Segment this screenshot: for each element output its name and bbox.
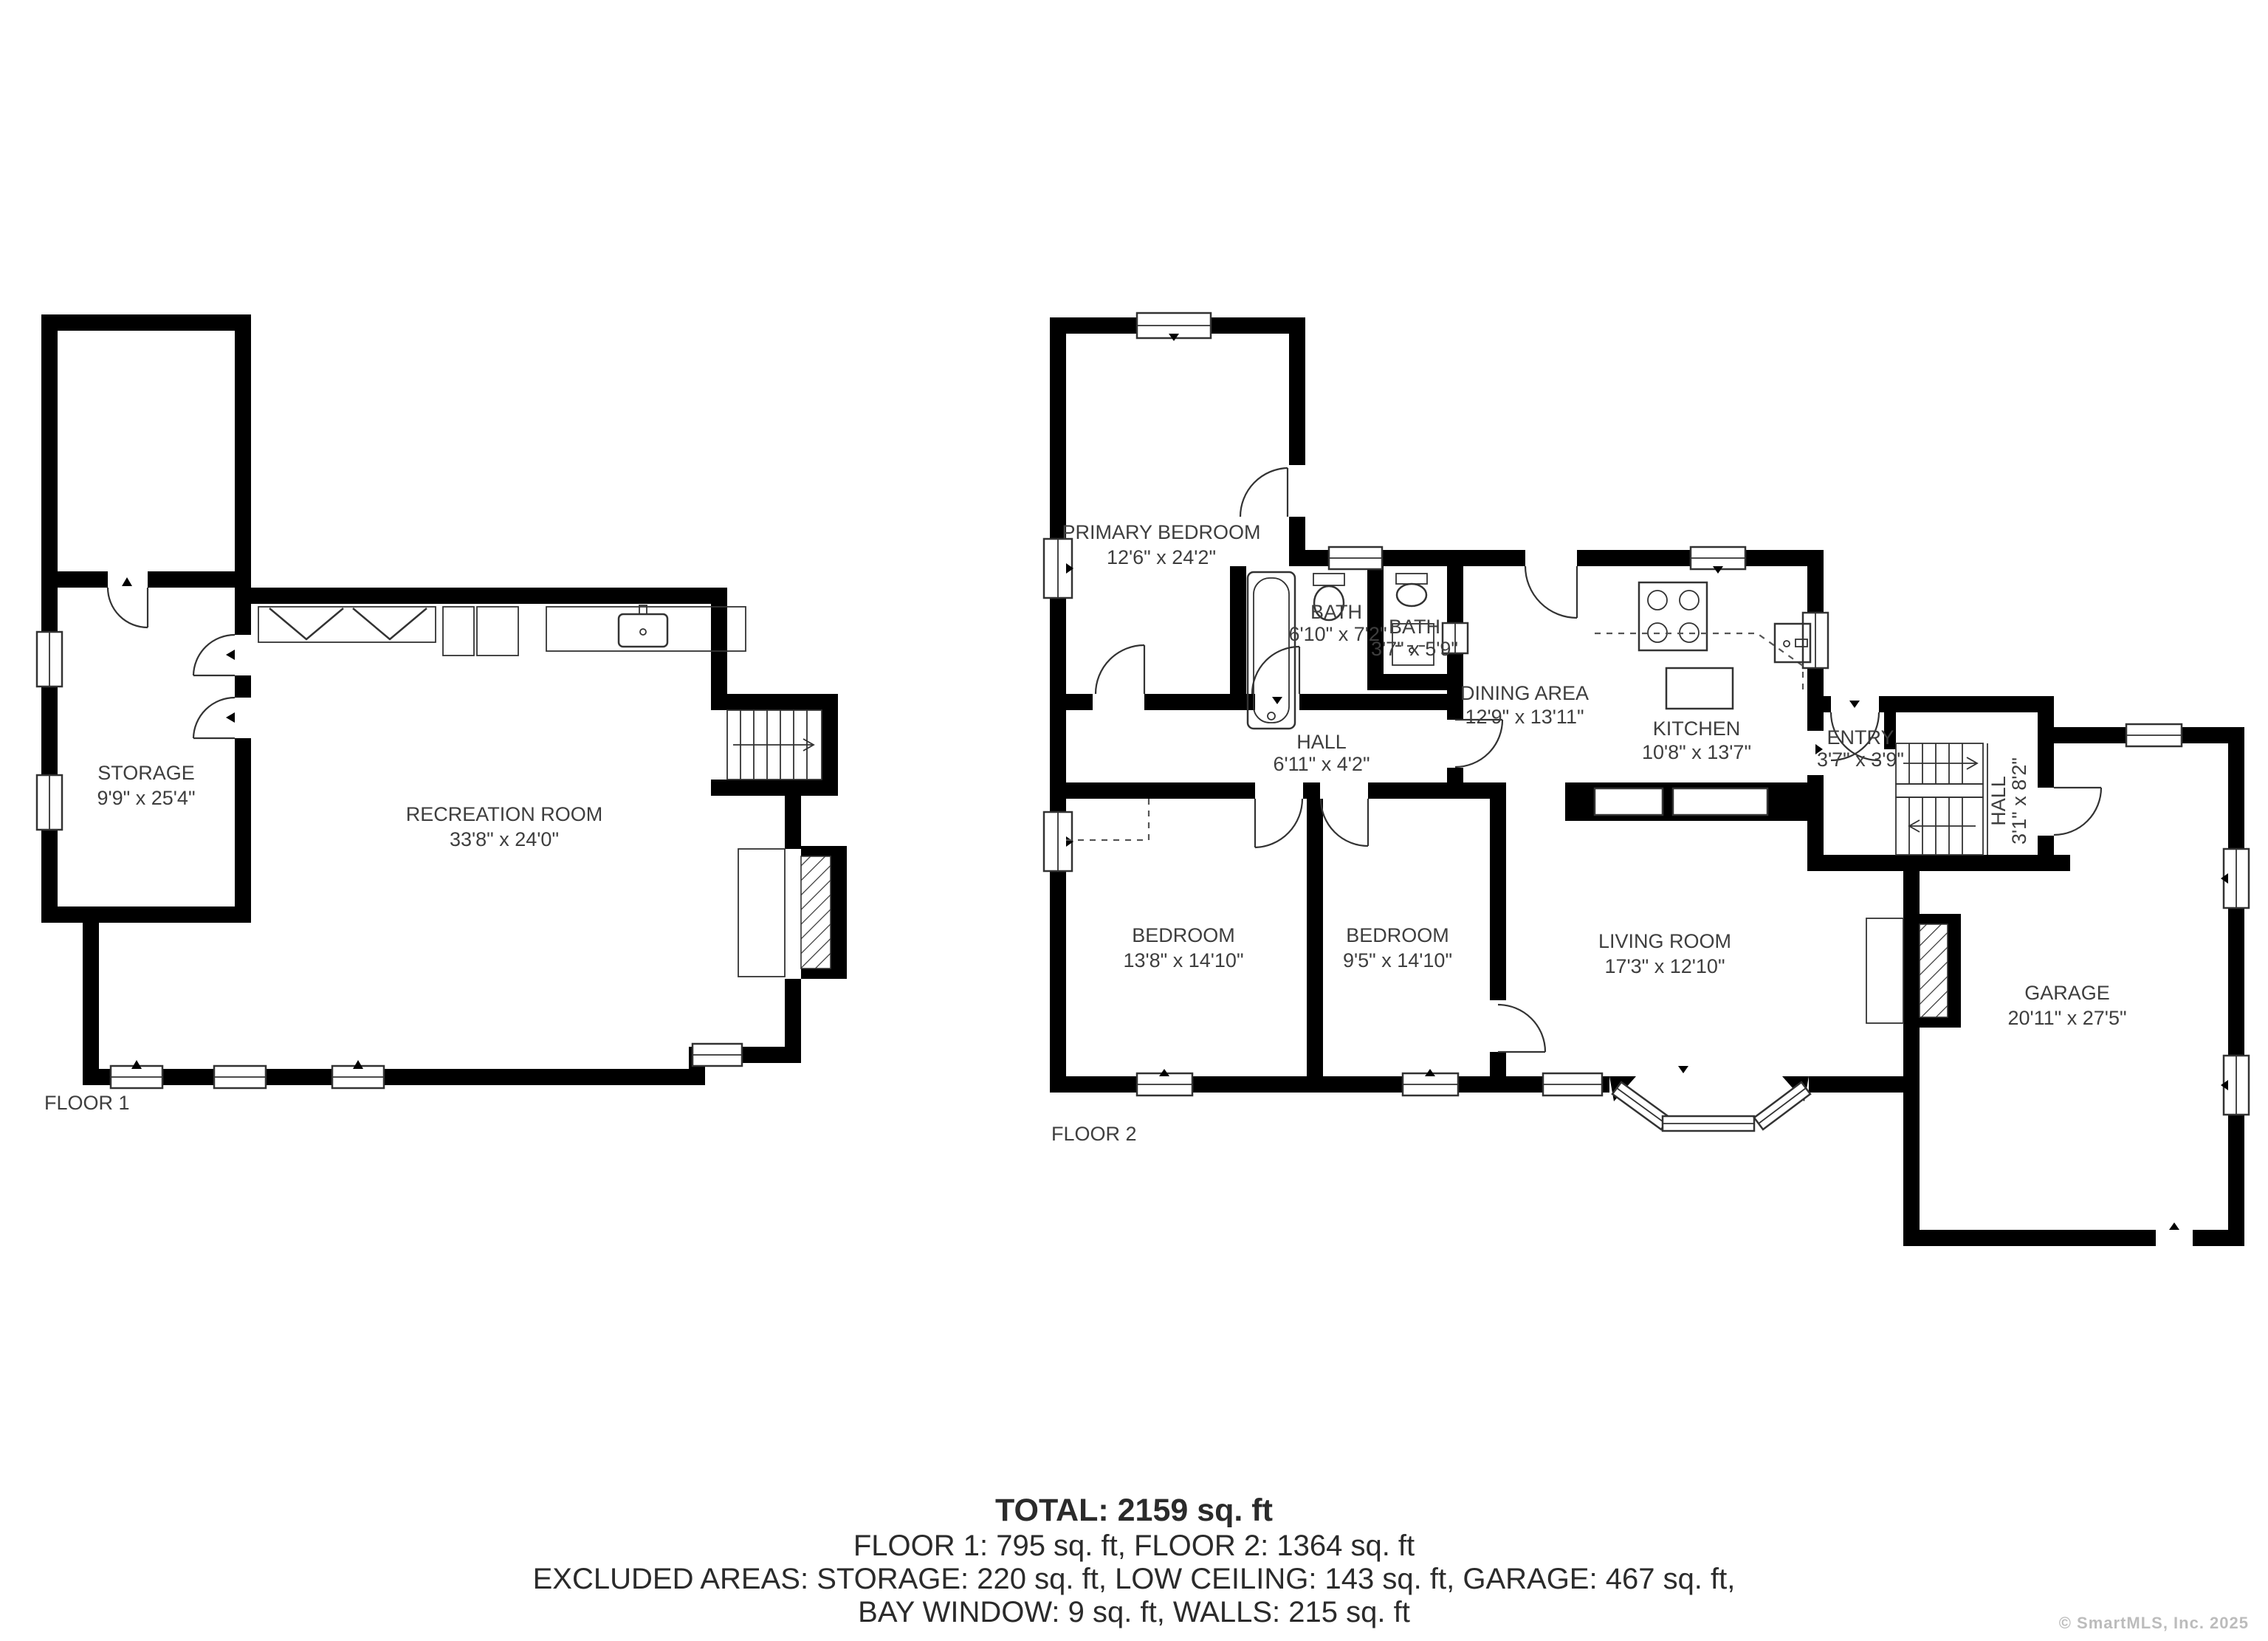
room-label-bedroom2: BEDROOM — [1346, 924, 1449, 946]
room-label-kitchen: KITCHEN — [1653, 718, 1741, 740]
door-triangle — [2169, 1222, 2179, 1230]
closet-bifold — [258, 607, 436, 642]
room-label-bedroom1: BEDROOM — [1132, 924, 1235, 946]
window — [1137, 1073, 1192, 1095]
floor1-room-labels: STORAGE 9'9" x 25'4" RECREATION ROOM 33'… — [97, 762, 602, 850]
door-arc — [1321, 799, 1368, 846]
peninsula-counters — [1595, 788, 1767, 815]
room-dims-living: 17'3" x 12'10" — [1604, 955, 1725, 977]
window — [1329, 547, 1382, 569]
stairs — [727, 710, 822, 780]
room-dims-bedroom2: 9'5" x 14'10" — [1343, 949, 1452, 971]
door-arc — [1498, 1005, 1545, 1052]
stairs — [1896, 743, 1983, 855]
room-dims-hall: 6'11" x 4'2" — [1273, 753, 1370, 775]
room-dims-storage: 9'9" x 25'4" — [97, 787, 195, 809]
door-arc — [1240, 468, 1288, 517]
window — [37, 632, 62, 687]
room-label-hall: HALL — [1296, 731, 1347, 753]
room-label-recreation: RECREATION ROOM — [406, 803, 603, 825]
summary-total: TOTAL: 2159 sq. ft — [0, 1493, 2268, 1530]
window — [214, 1066, 266, 1088]
door-arc — [1252, 647, 1299, 694]
room-label-living: LIVING ROOM — [1598, 930, 1731, 952]
cabinets — [443, 607, 518, 656]
area-summary: TOTAL: 2159 sq. ft FLOOR 1: 795 sq. ft, … — [0, 1493, 2268, 1629]
room-dims-bedroom1: 13'8" x 14'10" — [1123, 949, 1243, 971]
door-arc — [1255, 799, 1302, 847]
window — [693, 1044, 742, 1066]
kitchen-island — [1666, 668, 1733, 709]
floor1-walls — [41, 314, 847, 1085]
window — [332, 1066, 384, 1088]
floor2-room-labels: PRIMARY BEDROOM 12'6" x 24'2" BATH 6'10"… — [1062, 521, 2126, 1029]
summary-excluded-line1: EXCLUDED AREAS: STORAGE: 220 sq. ft, LOW… — [0, 1563, 2268, 1596]
room-label-bath1: BATH — [1310, 601, 1362, 623]
room-label-storage: STORAGE — [97, 762, 195, 784]
window-triangle — [353, 1060, 363, 1069]
door-triangle — [226, 712, 235, 723]
room-dims-garage: 20'11" x 27'5" — [2007, 1007, 2126, 1029]
floorplan-canvas: STORAGE 9'9" x 25'4" RECREATION ROOM 33'… — [0, 0, 2268, 1641]
watermark: © SmartMLS, Inc. 2025 — [2059, 1614, 2249, 1633]
window — [37, 775, 62, 830]
room-label-garage: GARAGE — [2024, 982, 2110, 1004]
door-arc — [108, 588, 148, 627]
room-dims-dining: 12'9" x 13'11" — [1465, 706, 1584, 728]
door-triangle — [1849, 701, 1860, 708]
window — [1403, 1073, 1458, 1095]
window — [111, 1066, 162, 1088]
window — [1543, 1073, 1602, 1095]
door-triangle — [1272, 697, 1282, 704]
room-label-entry: ENTRY — [1827, 726, 1894, 749]
window — [2126, 724, 2182, 746]
room-label-hall2: HALL — [1987, 776, 2010, 826]
summary-excluded-line2: BAY WINDOW: 9 sq. ft, WALLS: 215 sq. ft — [0, 1596, 2268, 1629]
window-triangle — [131, 1060, 142, 1069]
counter-dashed-line — [1595, 633, 1803, 694]
room-label-primary: PRIMARY BEDROOM — [1062, 521, 1260, 543]
room-label-dining: DINING AREA — [1460, 682, 1589, 704]
room-dims-recreation: 33'8" x 24'0" — [450, 828, 559, 850]
summary-floors: FLOOR 1: 795 sq. ft, FLOOR 2: 1364 sq. f… — [0, 1530, 2268, 1563]
toilet — [1396, 574, 1427, 606]
room-dims-entry: 3'7" x 3'9" — [1817, 749, 1904, 771]
room-dims-bath2: 3'7" x 5'9" — [1371, 638, 1458, 660]
room-dims-hall2: 3'1" x 8'2" — [2008, 757, 2030, 844]
floor1-windows — [37, 632, 742, 1088]
fireplace — [738, 849, 831, 977]
room-dims-primary: 12'6" x 24'2" — [1107, 546, 1216, 568]
window-triangle — [1678, 1066, 1688, 1073]
window — [1691, 547, 1745, 569]
bay-window — [1612, 1082, 1810, 1131]
floor2-label: FLOOR 2 — [1051, 1123, 1137, 1145]
floor2-plan: PRIMARY BEDROOM 12'6" x 24'2" BATH 6'10"… — [1044, 313, 2249, 1246]
door-arc — [1096, 645, 1144, 694]
floorplan-drawing: STORAGE 9'9" x 25'4" RECREATION ROOM 33'… — [0, 0, 2268, 1641]
door-arc — [2054, 788, 2101, 835]
door-arc — [1525, 566, 1577, 618]
door-triangle — [122, 577, 132, 586]
room-dims-kitchen: 10'8" x 13'7" — [1642, 741, 1751, 763]
floor1-plan: STORAGE 9'9" x 25'4" RECREATION ROOM 33'… — [37, 314, 847, 1114]
stove — [1639, 582, 1707, 650]
low-ceiling-dashed-line — [1066, 799, 1149, 840]
floor1-label: FLOOR 1 — [44, 1092, 130, 1114]
room-label-bath2: BATH — [1389, 616, 1440, 638]
door-triangle — [226, 650, 235, 660]
